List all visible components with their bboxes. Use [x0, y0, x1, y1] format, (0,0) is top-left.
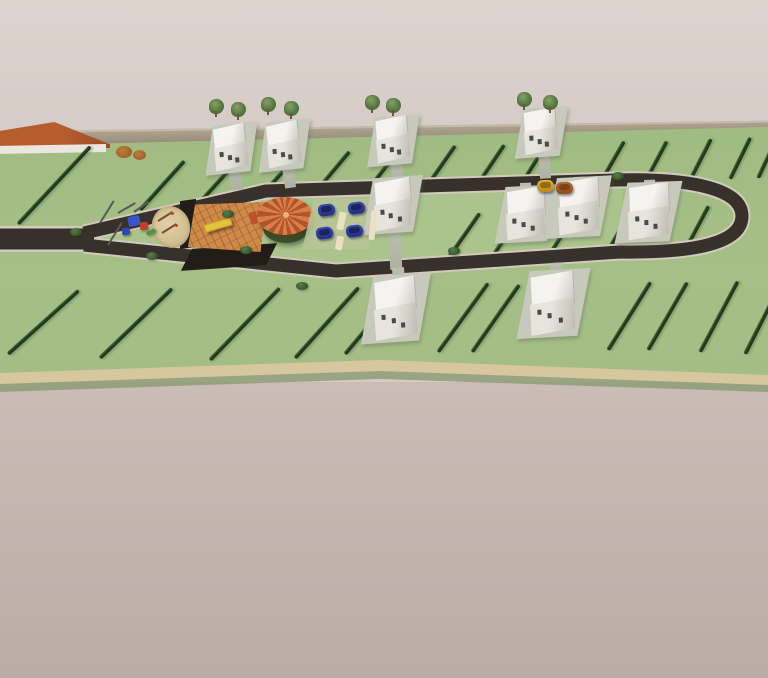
house-window [281, 152, 286, 157]
blue-car [317, 203, 336, 217]
bush [146, 252, 158, 260]
tree [231, 102, 246, 117]
bush [612, 172, 624, 180]
house-window [380, 209, 384, 214]
house-window [273, 149, 278, 154]
house [529, 274, 578, 334]
bush [240, 246, 252, 254]
house-window [397, 149, 401, 154]
tree [365, 95, 380, 110]
tree [209, 99, 224, 114]
house-window [389, 213, 393, 218]
house [505, 189, 547, 239]
footpath [335, 235, 344, 250]
house-window [530, 136, 534, 141]
house-window [391, 318, 395, 323]
swing-frame [118, 202, 136, 214]
swing-frame [99, 200, 114, 223]
house-window [644, 220, 648, 225]
bush [70, 228, 82, 236]
bush [222, 210, 234, 218]
house-window [398, 216, 402, 221]
tree [517, 92, 532, 107]
blue-car [347, 201, 366, 215]
swing-frame [133, 201, 149, 213]
seesaw-seat [175, 224, 178, 227]
scene-items [0, 0, 768, 678]
house-window [401, 322, 405, 327]
playground-equipment [122, 227, 131, 235]
tree [261, 97, 276, 112]
house [372, 180, 413, 231]
house-window [513, 218, 517, 223]
house [265, 122, 303, 167]
house-window [220, 152, 225, 157]
house-window [537, 139, 541, 144]
house [212, 125, 250, 170]
house-window [522, 222, 526, 227]
house-window [654, 224, 658, 229]
house-window [288, 154, 293, 159]
house-window [584, 219, 588, 224]
house-window [390, 147, 394, 152]
house-window [548, 313, 552, 318]
swing-frame [107, 222, 122, 245]
house-window [235, 157, 240, 162]
house-window [565, 212, 569, 217]
house-window [538, 309, 542, 314]
house-window [635, 217, 639, 222]
yellow-car [537, 180, 554, 193]
playground-equipment [140, 222, 149, 231]
house-window [531, 225, 535, 230]
blue-car [345, 224, 364, 238]
bush [448, 247, 460, 255]
playground-equipment [127, 215, 141, 227]
seesaw-seat [171, 212, 174, 215]
house-window [381, 314, 385, 319]
site-plan-render [0, 0, 768, 678]
house-window [228, 155, 233, 160]
house-window [545, 142, 549, 147]
tree [386, 98, 401, 113]
house [374, 118, 412, 163]
house [372, 279, 420, 340]
house-window [574, 215, 578, 220]
bush [296, 282, 308, 290]
house-window [558, 317, 562, 322]
tree [284, 101, 299, 116]
blue-car [315, 226, 334, 240]
house-window [382, 144, 386, 149]
rust-car [556, 182, 573, 195]
house [627, 185, 671, 238]
house [523, 110, 560, 154]
